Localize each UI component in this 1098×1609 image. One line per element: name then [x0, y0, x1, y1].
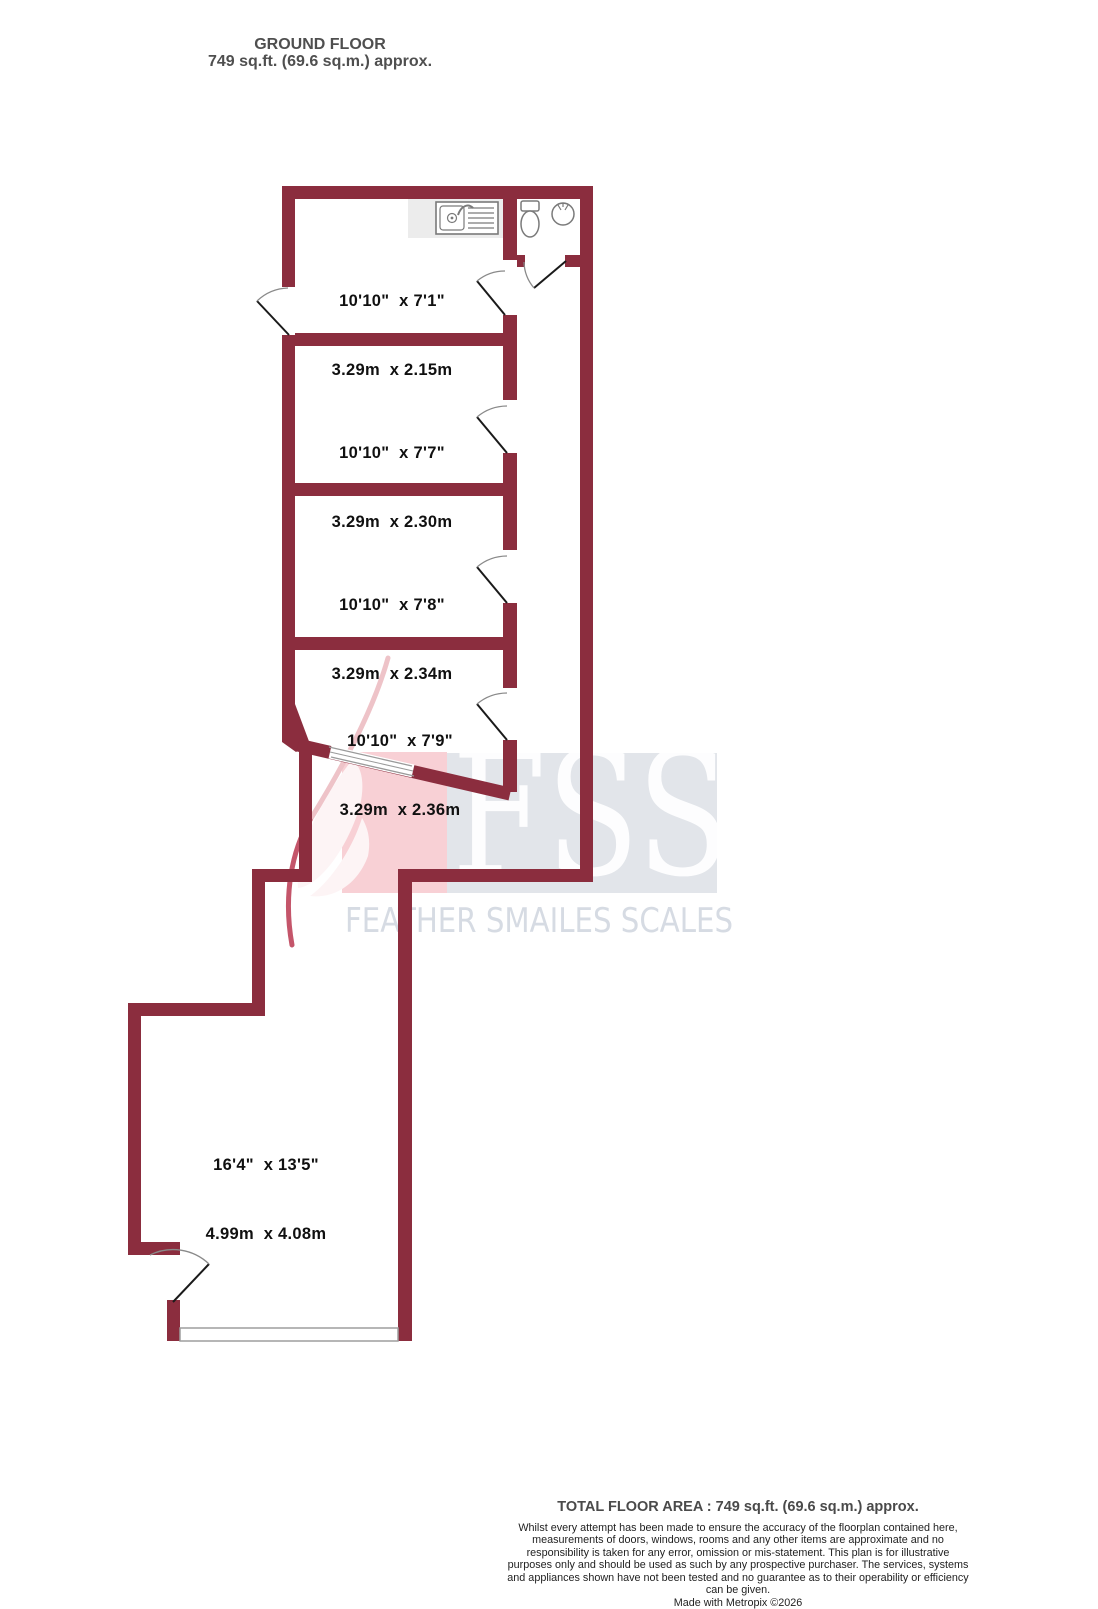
room-1-imperial: 10'10" x 7'1": [292, 290, 492, 313]
door-bathroom: [524, 261, 566, 288]
room-1-metric: 3.29m x 2.15m: [292, 359, 492, 382]
disclaimer-text: Whilst every attempt has been made to en…: [503, 1522, 973, 1596]
room-3-metric: 3.29m x 2.34m: [292, 663, 492, 686]
wall-right-outer: [580, 186, 593, 882]
kitchen-sink-icon: [436, 202, 498, 234]
room-3-imperial: 10'10" x 7'8": [292, 594, 492, 617]
wash-basin-icon: [552, 203, 574, 225]
wall-corridor-bottom: [398, 869, 593, 882]
total-floor-area: TOTAL FLOOR AREA : 749 sq.ft. (69.6 sq.m…: [503, 1499, 973, 1515]
room-2-imperial: 10'10" x 7'7": [292, 442, 492, 465]
wall-step-left-b: [252, 869, 265, 1016]
room-2-metric: 3.29m x 2.30m: [292, 511, 492, 534]
wall-bathroom-stub-right: [565, 255, 593, 267]
room-2-dimensions: 10'10" x 7'7" 3.29m x 2.30m: [292, 396, 492, 557]
wall-top: [282, 186, 593, 199]
toilet-icon: [521, 201, 539, 237]
wall-inner-4: [503, 740, 517, 792]
room-4-imperial: 10'10" x 7'9": [300, 730, 500, 753]
footer: TOTAL FLOOR AREA : 749 sq.ft. (69.6 sq.m…: [503, 1499, 973, 1609]
wall-inner-3: [503, 603, 517, 688]
window-bottom: [180, 1328, 398, 1341]
door-room1-left: [257, 288, 289, 335]
room-4-metric: 3.29m x 2.36m: [300, 799, 500, 822]
living-room-metric: 4.99m x 4.08m: [166, 1223, 366, 1246]
living-room-dimensions: 16'4" x 13'5" 4.99m x 4.08m: [166, 1108, 366, 1269]
floor-plan: FSS FEATHER SMAILES SCALES: [0, 0, 1098, 1600]
living-room-imperial: 16'4" x 13'5": [166, 1154, 366, 1177]
wall-inner-bathroom: [503, 199, 517, 260]
room-1-dimensions: 10'10" x 7'1" 3.29m x 2.15m: [292, 244, 492, 405]
wall-door-stub: [167, 1300, 180, 1341]
wall-left-living: [128, 1003, 141, 1255]
room-4-dimensions: 10'10" x 7'9" 3.29m x 2.36m: [300, 684, 500, 845]
wall-inner-2: [503, 453, 517, 550]
metropix-credit: Made with Metropix ©2026: [503, 1597, 973, 1609]
wall-right-living: [398, 869, 412, 1341]
wall-step-horiz-b: [128, 1003, 265, 1016]
wall-inner-1: [503, 315, 517, 400]
